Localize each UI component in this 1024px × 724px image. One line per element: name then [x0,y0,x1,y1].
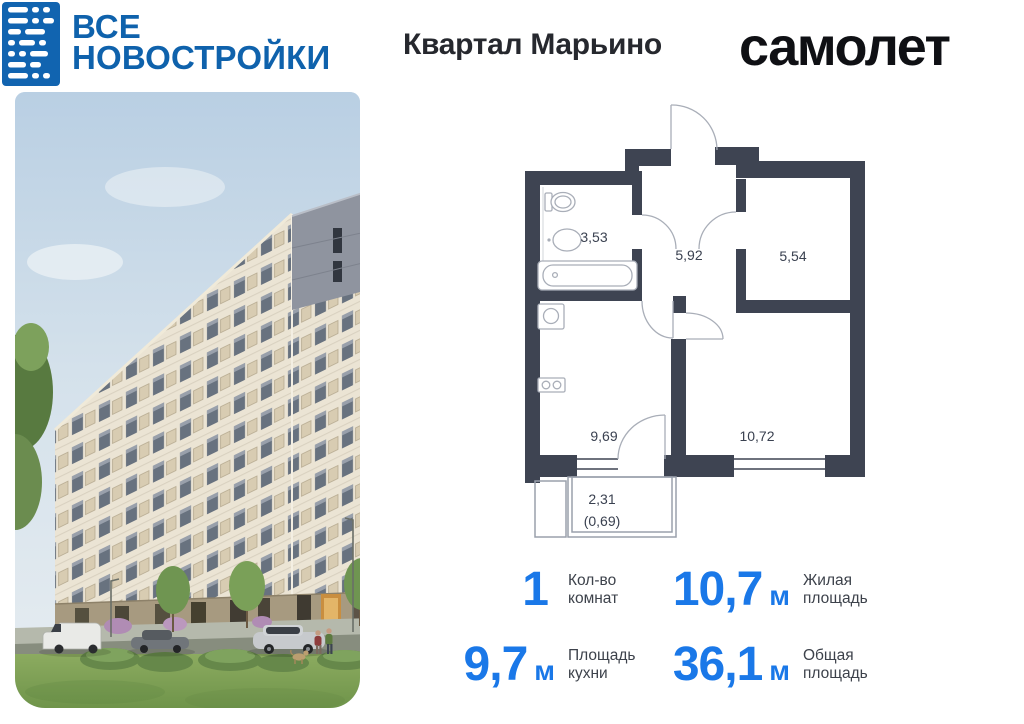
total-area-unit: м [769,655,790,686]
kitchen-area-value: 9,7м [380,641,555,691]
bedroom-area-label: 5,54 [779,248,806,264]
vse-novostroyki-logo-icon [2,2,60,86]
building-photo [15,92,360,708]
living-area-value: 10,7м [570,566,790,616]
page: ВСЕ НОВОСТРОЙКИ Квартал Марьино самолет [0,0,1024,724]
samolet-logo[interactable]: самолет [739,16,949,78]
balcony-reduced-area-label: (0,69) [584,513,621,529]
plan-fixtures [538,187,637,392]
building-illustration [15,92,360,708]
kitchen-area-unit: м [534,655,555,686]
floor-plan: 3,53 5,92 5,54 9,69 10,72 2,31 (0,69) [505,95,885,565]
plan-walls [525,147,865,483]
logo-line2: НОВОСТРОЙКИ [72,42,330,73]
kitchen-area-number: 9,7 [464,638,528,691]
vse-novostroyki-logo[interactable]: ВСЕ НОВОСТРОЙКИ [2,2,330,86]
logo-line1: ВСЕ [72,11,330,42]
rooms-count-number: 1 [522,563,548,616]
total-area-label: Общая площадь [803,647,868,683]
bathroom-area-label: 3,53 [580,229,607,245]
page-title: Квартал Марьино [403,28,662,62]
hallway-area-label: 5,92 [675,247,702,263]
rooms-count-value: 1 [380,566,555,616]
balcony-area-label: 2,31 [588,491,615,507]
total-area-value: 36,1м [570,641,790,691]
living-room-area-label: 10,72 [739,428,774,444]
total-area-number: 36,1 [673,638,762,691]
vse-novostroyki-logo-text: ВСЕ НОВОСТРОЙКИ [72,2,330,86]
living-area-number: 10,7 [673,563,762,616]
kitchen-area-label: 9,69 [590,428,617,444]
living-area-unit: м [769,580,790,611]
living-area-label: Жилая площадь [803,572,868,608]
